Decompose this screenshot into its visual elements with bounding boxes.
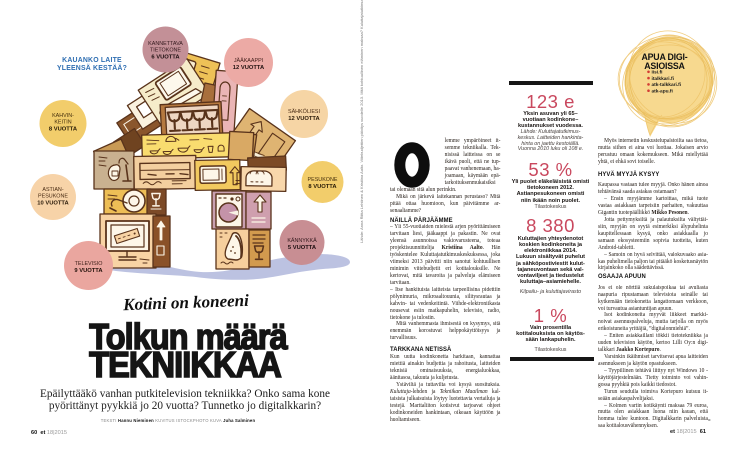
svg-text:atk-talkkari.fi: atk-talkkari.fi — [652, 82, 682, 88]
svg-text:5 VUOTTA: 5 VUOTTA — [288, 245, 317, 251]
svg-text:ASTIAN-: ASTIAN- — [42, 187, 63, 193]
svg-text:SÄHKÖLIESI: SÄHKÖLIESI — [288, 108, 320, 115]
svg-text:PESUKONE: PESUKONE — [308, 177, 338, 183]
svg-text:KAHVIN-: KAHVIN- — [52, 113, 74, 119]
svg-text:iisi.fi: iisi.fi — [652, 70, 663, 76]
svg-text:9 VUOTTA: 9 VUOTTA — [74, 268, 103, 274]
svg-text:8 VUOTTA: 8 VUOTTA — [308, 184, 337, 190]
svg-text:TIETOKONE: TIETOKONE — [150, 48, 181, 54]
svg-text:italkkari.fi: italkkari.fi — [652, 76, 674, 82]
svg-text:KANNETTAVA: KANNETTAVA — [148, 41, 183, 47]
svg-text:TELEVISIO: TELEVISIO — [75, 261, 103, 267]
svg-text:12 VUOTTA: 12 VUOTTA — [233, 65, 265, 71]
svg-text:10 VUOTTA: 10 VUOTTA — [37, 201, 69, 207]
svg-text:12 VUOTTA: 12 VUOTTA — [288, 116, 320, 122]
svg-text:ASIOISSA: ASIOISSA — [644, 61, 685, 71]
svg-text:6 VUOTTA: 6 VUOTTA — [151, 55, 180, 61]
svg-text:8 VUOTTA: 8 VUOTTA — [49, 127, 78, 133]
svg-text:KÄNNYKKÄ: KÄNNYKKÄ — [287, 237, 317, 244]
svg-text:PESUKONE: PESUKONE — [38, 194, 68, 200]
svg-text:JÄÄKAAPPI: JÄÄKAAPPI — [234, 57, 263, 64]
svg-text:KEITIN: KEITIN — [54, 120, 71, 126]
svg-text:atk-apu.fi: atk-apu.fi — [652, 89, 673, 95]
